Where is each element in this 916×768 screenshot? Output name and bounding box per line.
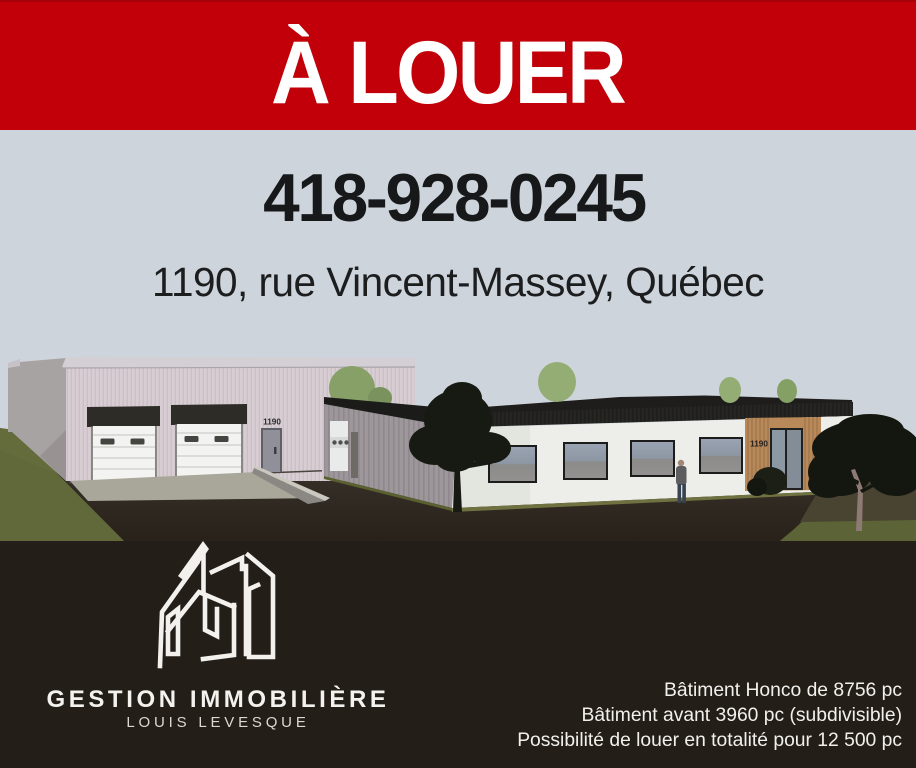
svg-text:1190: 1190 <box>750 440 768 449</box>
svg-text:1190: 1190 <box>263 418 281 427</box>
